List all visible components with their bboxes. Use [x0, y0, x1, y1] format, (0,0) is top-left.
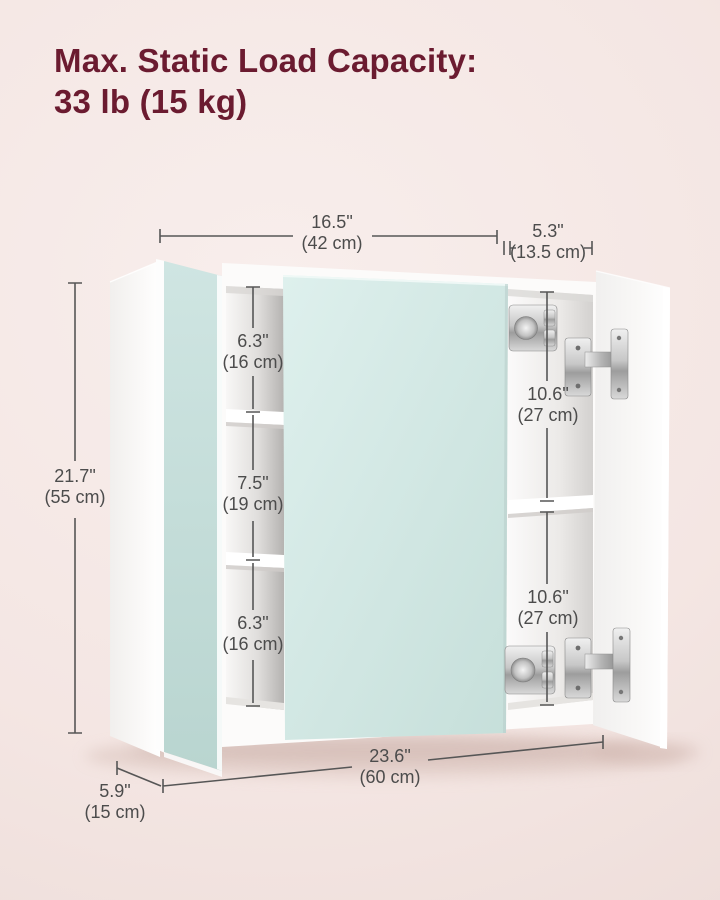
dim-right-shelf-top-label: 10.6" (27 cm)	[493, 384, 603, 426]
dim-left-shelf-top-inches: 6.3"	[198, 331, 308, 352]
dim-door-width-inches: 5.3"	[493, 221, 603, 242]
dim-door-width-cm: (13.5 cm)	[493, 242, 603, 263]
page-title: Max. Static Load Capacity: 33 lb (15 kg)	[54, 40, 477, 122]
dim-total-width-cm: (60 cm)	[335, 767, 445, 788]
dim-top-width-cm: (42 cm)	[277, 233, 387, 254]
dim-top-width-inches: 16.5"	[277, 212, 387, 233]
dim-right-shelf-top-cm: (27 cm)	[493, 405, 603, 426]
dim-left-shelf-middle-label: 7.5" (19 cm)	[198, 473, 308, 515]
dim-height-cm: (55 cm)	[20, 487, 130, 508]
dim-total-width-inches: 23.6"	[335, 746, 445, 767]
dim-height-inches: 21.7"	[20, 466, 130, 487]
dim-right-shelf-bottom-label: 10.6" (27 cm)	[493, 587, 603, 629]
dim-top-width-label: 16.5" (42 cm)	[277, 212, 387, 254]
dim-left-shelf-middle-cm: (19 cm)	[198, 494, 308, 515]
dim-door-width-label: 5.3" (13.5 cm)	[493, 221, 603, 263]
dim-left-shelf-bottom-label: 6.3" (16 cm)	[198, 613, 308, 655]
dim-right-shelf-bottom-cm: (27 cm)	[493, 608, 603, 629]
dim-left-shelf-bottom-inches: 6.3"	[198, 613, 308, 634]
dim-total-width-label: 23.6" (60 cm)	[335, 746, 445, 788]
dim-right-shelf-bottom-inches: 10.6"	[493, 587, 603, 608]
product-dimension-diagram: Max. Static Load Capacity: 33 lb (15 kg)	[0, 0, 720, 900]
dim-right-shelf-top-inches: 10.6"	[493, 384, 603, 405]
right-mirror-door-open	[593, 271, 670, 749]
dim-left-shelf-middle-inches: 7.5"	[198, 473, 308, 494]
title-line-1: Max. Static Load Capacity:	[54, 40, 477, 81]
dim-left-shelf-top-cm: (16 cm)	[198, 352, 308, 373]
dim-height-label: 21.7" (55 cm)	[20, 466, 130, 508]
dim-depth-inches: 5.9"	[60, 781, 170, 802]
hinge-mount-top	[509, 305, 557, 351]
dim-depth-cm: (15 cm)	[60, 802, 170, 823]
title-line-2: 33 lb (15 kg)	[54, 81, 477, 122]
center-mirror-door	[283, 275, 508, 740]
dim-depth-label: 5.9" (15 cm)	[60, 781, 170, 823]
shelf-lower	[226, 552, 284, 572]
dim-left-shelf-top-label: 6.3" (16 cm)	[198, 331, 308, 373]
dim-left-shelf-bottom-cm: (16 cm)	[198, 634, 308, 655]
cabinet-side-panel	[110, 261, 160, 757]
